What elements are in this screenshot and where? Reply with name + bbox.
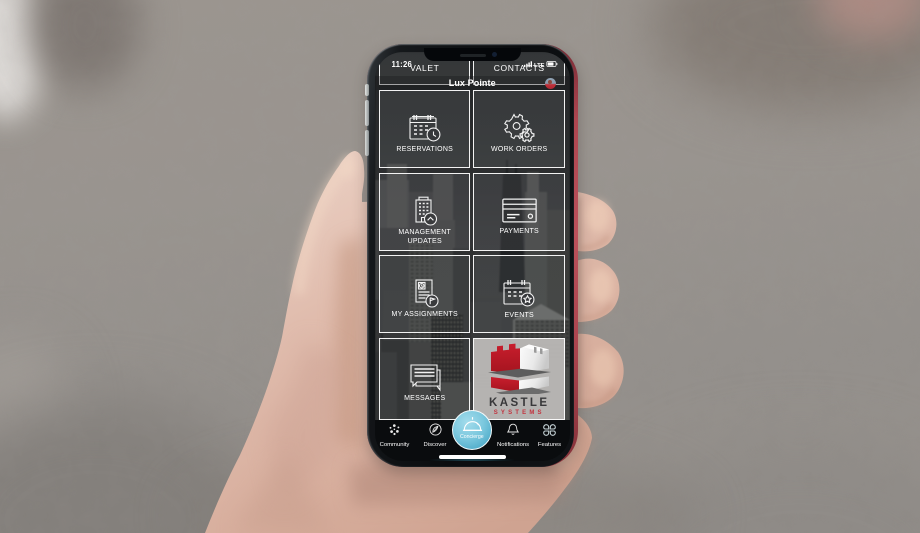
svg-text:LTE: LTE <box>534 63 545 68</box>
